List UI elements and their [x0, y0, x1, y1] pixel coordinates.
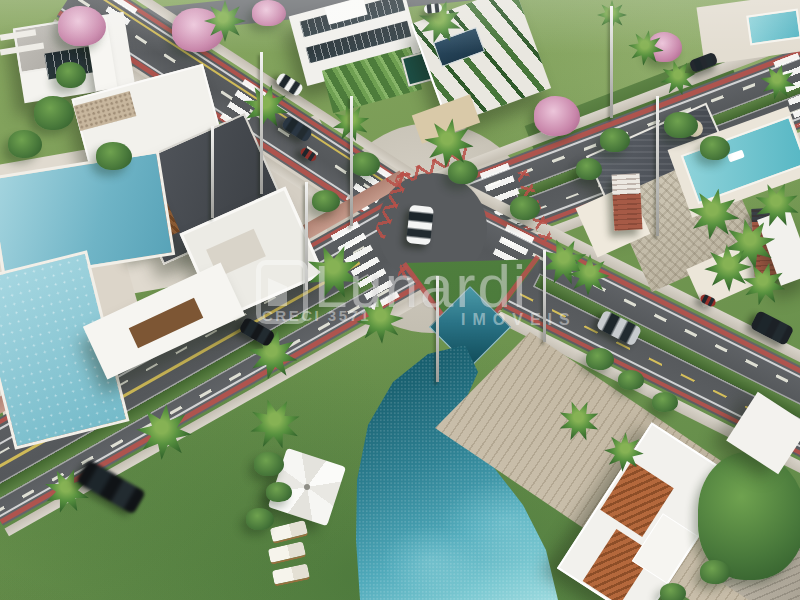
street-lamp: [543, 250, 546, 342]
sun-lounger: [270, 520, 309, 544]
bush: [254, 452, 284, 476]
bush: [510, 196, 540, 220]
pink-flowering-tree: [534, 96, 580, 136]
bush: [350, 152, 380, 176]
street-lamp: [211, 126, 214, 218]
bush: [448, 160, 478, 184]
car-white-intersection: [406, 205, 434, 245]
bush: [660, 583, 686, 600]
street-lamp: [656, 96, 659, 236]
bush: [618, 370, 644, 390]
street-lamp: [305, 182, 308, 290]
bush: [700, 560, 730, 584]
street-lamp: [610, 6, 613, 118]
bush: [652, 392, 678, 412]
bush: [8, 130, 42, 158]
pink-flowering-tree: [58, 6, 106, 46]
bush: [586, 348, 614, 370]
street-lamp: [436, 276, 439, 382]
street-lamp: [350, 96, 353, 226]
bush: [246, 508, 274, 530]
bush: [266, 482, 292, 502]
sun-lounger: [272, 563, 311, 586]
street-lamp: [260, 52, 263, 194]
umbrella-center: [304, 484, 310, 490]
pink-flowering-tree: [252, 0, 286, 26]
bush: [600, 128, 630, 152]
bush: [56, 62, 86, 88]
sun-lounger: [268, 541, 307, 565]
aerial-render-scene: Lunardi CRECI 3571 IMÓVEIS: [0, 0, 800, 600]
bush: [664, 112, 698, 138]
brick-chimney: [612, 173, 643, 230]
bush: [96, 142, 132, 170]
bush: [700, 136, 730, 160]
bush: [576, 158, 602, 180]
bush: [312, 190, 340, 212]
bush: [34, 96, 74, 130]
